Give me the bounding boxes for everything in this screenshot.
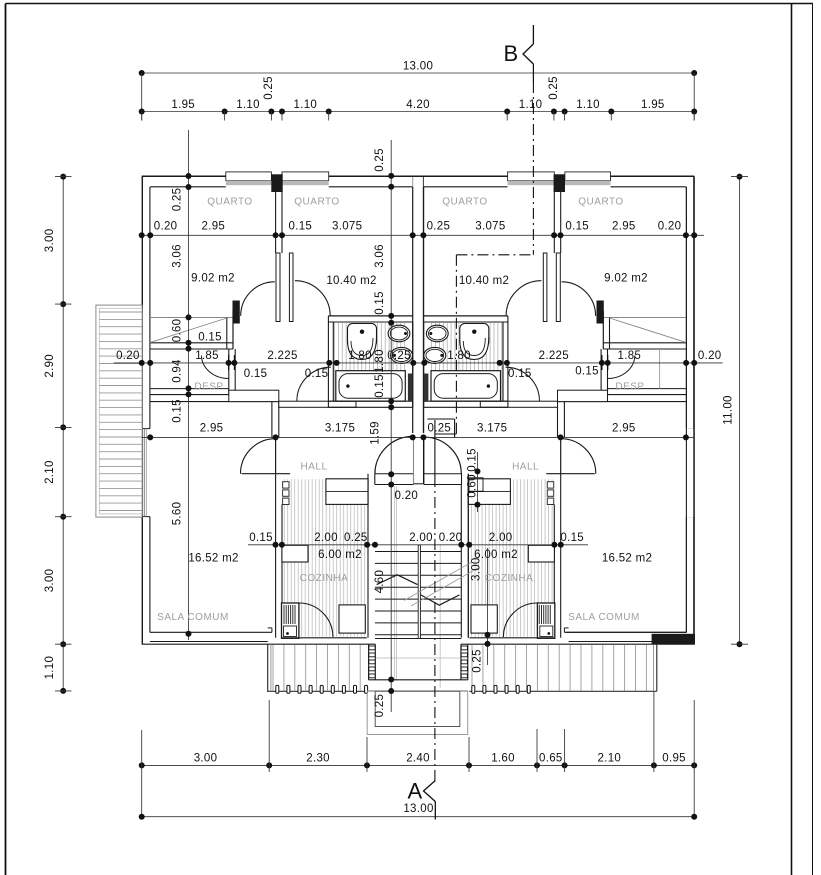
svg-text:9.02 m2: 9.02 m2 xyxy=(604,273,648,285)
svg-text:2.90: 2.90 xyxy=(44,354,56,378)
svg-text:13.00: 13.00 xyxy=(403,803,433,815)
svg-text:0.20: 0.20 xyxy=(116,350,140,362)
svg-text:3.175: 3.175 xyxy=(325,422,355,434)
svg-text:1.80: 1.80 xyxy=(348,350,372,362)
svg-text:0.20: 0.20 xyxy=(698,350,722,362)
svg-text:1.10: 1.10 xyxy=(294,99,318,111)
svg-text:COZINHA: COZINHA xyxy=(300,573,349,584)
svg-text:0.25: 0.25 xyxy=(428,422,452,434)
svg-text:2.95: 2.95 xyxy=(200,422,224,434)
svg-text:4.60: 4.60 xyxy=(374,570,386,594)
svg-text:1.10: 1.10 xyxy=(236,99,260,111)
svg-text:2.225: 2.225 xyxy=(267,350,297,362)
svg-text:3.00: 3.00 xyxy=(44,229,56,253)
svg-text:0.20: 0.20 xyxy=(395,490,419,502)
svg-text:0.25: 0.25 xyxy=(374,694,386,718)
svg-text:2.00: 2.00 xyxy=(489,532,513,544)
svg-text:3.00: 3.00 xyxy=(194,752,218,764)
svg-text:0.20: 0.20 xyxy=(658,221,682,233)
svg-text:1.85: 1.85 xyxy=(195,350,219,362)
svg-text:0.60: 0.60 xyxy=(467,474,479,498)
svg-text:DESP: DESP xyxy=(194,382,223,393)
svg-text:QUARTO: QUARTO xyxy=(294,197,339,208)
svg-text:1.59: 1.59 xyxy=(370,421,382,445)
svg-text:QUARTO: QUARTO xyxy=(578,197,623,208)
svg-text:10.40 m2: 10.40 m2 xyxy=(326,275,376,287)
svg-text:0.15: 0.15 xyxy=(244,368,268,380)
svg-text:0.25: 0.25 xyxy=(374,148,386,172)
svg-text:0.25: 0.25 xyxy=(472,649,484,673)
svg-text:1.85: 1.85 xyxy=(618,350,642,362)
svg-text:2.00: 2.00 xyxy=(409,532,433,544)
svg-text:2.10: 2.10 xyxy=(44,460,56,484)
svg-text:0.15: 0.15 xyxy=(172,399,184,423)
svg-text:0.15: 0.15 xyxy=(374,374,386,398)
svg-text:13.00: 13.00 xyxy=(403,61,433,73)
svg-text:DESP: DESP xyxy=(615,382,644,393)
svg-text:COZINHA: COZINHA xyxy=(485,573,534,584)
svg-text:16.52 m2: 16.52 m2 xyxy=(602,553,652,565)
svg-text:3.175: 3.175 xyxy=(477,422,507,434)
svg-text:0.15: 0.15 xyxy=(249,532,273,544)
svg-text:HALL: HALL xyxy=(300,462,327,473)
svg-text:2.95: 2.95 xyxy=(612,221,636,233)
svg-text:5.60: 5.60 xyxy=(172,502,184,526)
svg-text:0.25: 0.25 xyxy=(387,350,411,362)
svg-text:0.15: 0.15 xyxy=(198,331,222,343)
svg-text:1.10: 1.10 xyxy=(576,99,600,111)
svg-text:1.60: 1.60 xyxy=(491,752,515,764)
svg-text:0.25: 0.25 xyxy=(344,532,368,544)
svg-text:11.00: 11.00 xyxy=(723,395,735,424)
svg-text:0.95: 0.95 xyxy=(662,752,686,764)
svg-text:B: B xyxy=(504,41,519,66)
svg-text:2.95: 2.95 xyxy=(612,422,636,434)
svg-text:0.20: 0.20 xyxy=(439,532,463,544)
svg-text:1.95: 1.95 xyxy=(641,99,665,111)
svg-text:0.60: 0.60 xyxy=(172,319,184,343)
svg-text:2.00: 2.00 xyxy=(314,532,338,544)
svg-text:0.15: 0.15 xyxy=(565,221,589,233)
svg-text:6.00 m2: 6.00 m2 xyxy=(474,549,518,561)
svg-text:SALA COMUM: SALA COMUM xyxy=(157,612,229,623)
svg-text:9.02 m2: 9.02 m2 xyxy=(191,273,235,285)
svg-text:3.075: 3.075 xyxy=(475,221,505,233)
svg-text:0.25: 0.25 xyxy=(172,188,184,212)
svg-text:0.15: 0.15 xyxy=(289,221,313,233)
svg-text:1.10: 1.10 xyxy=(44,656,56,680)
svg-text:QUARTO: QUARTO xyxy=(442,197,487,208)
svg-text:0.65: 0.65 xyxy=(539,752,563,764)
svg-text:3.06: 3.06 xyxy=(172,244,184,268)
svg-text:1.95: 1.95 xyxy=(171,99,195,111)
svg-text:0.15: 0.15 xyxy=(374,291,386,315)
svg-text:0.20: 0.20 xyxy=(154,221,178,233)
svg-text:1.80: 1.80 xyxy=(374,349,386,373)
svg-text:0.25: 0.25 xyxy=(263,76,275,100)
svg-text:16.52 m2: 16.52 m2 xyxy=(188,553,238,565)
svg-text:0.15: 0.15 xyxy=(305,368,329,380)
svg-text:1.80: 1.80 xyxy=(447,350,471,362)
svg-text:QUARTO: QUARTO xyxy=(207,197,252,208)
svg-text:0.15: 0.15 xyxy=(575,366,599,378)
svg-text:0.15: 0.15 xyxy=(560,532,584,544)
svg-text:6.00 m2: 6.00 m2 xyxy=(318,549,362,561)
svg-text:2.95: 2.95 xyxy=(202,221,226,233)
svg-text:4.20: 4.20 xyxy=(406,99,430,111)
svg-text:HALL: HALL xyxy=(512,462,539,473)
svg-text:0.94: 0.94 xyxy=(172,359,184,383)
svg-text:10.40 m2: 10.40 m2 xyxy=(459,275,509,287)
svg-text:3.075: 3.075 xyxy=(332,221,362,233)
svg-text:0.15: 0.15 xyxy=(508,368,532,380)
svg-text:2.40: 2.40 xyxy=(406,752,430,764)
svg-text:3.06: 3.06 xyxy=(374,244,386,268)
svg-text:0.25: 0.25 xyxy=(548,76,560,100)
svg-text:2.30: 2.30 xyxy=(306,752,330,764)
svg-text:3.00: 3.00 xyxy=(44,569,56,593)
svg-text:2.10: 2.10 xyxy=(598,752,622,764)
svg-text:0.15: 0.15 xyxy=(467,448,479,472)
svg-text:1.10: 1.10 xyxy=(519,99,543,111)
svg-text:SALA COMUM: SALA COMUM xyxy=(568,612,640,623)
svg-text:0.25: 0.25 xyxy=(427,221,451,233)
svg-text:A: A xyxy=(408,779,423,804)
svg-text:2.225: 2.225 xyxy=(539,350,569,362)
